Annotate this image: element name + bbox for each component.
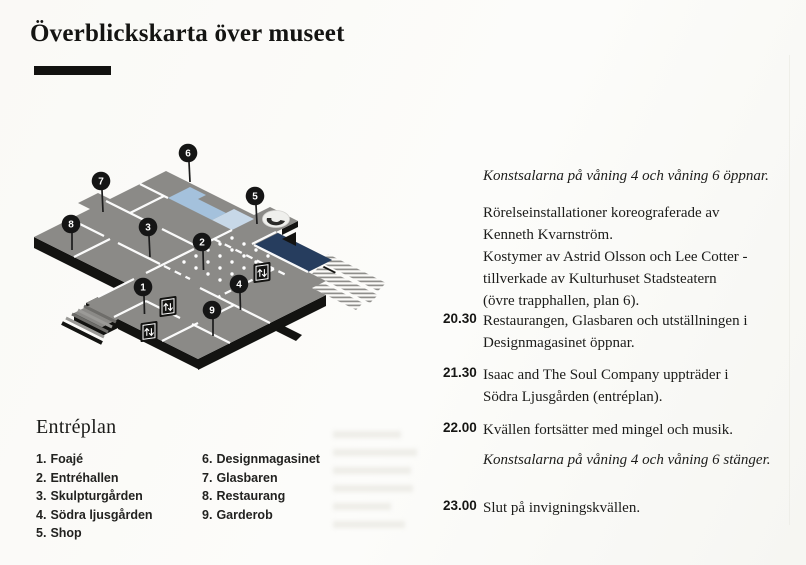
elevator-icon xyxy=(160,296,177,317)
legend-item-2: 2.Entréhallen xyxy=(36,469,153,488)
event-time: 21.30 xyxy=(443,365,477,380)
event-time: 22.00 xyxy=(443,420,477,435)
schedule-event-2130: 21.30 Isaac and The Soul Company uppträd… xyxy=(443,364,793,408)
schedule-event-2030: 20.30 Restaurangen, Glasbaren och utstäl… xyxy=(443,310,793,354)
opening-note: Konstsalarna på våning 4 och våning 6 öp… xyxy=(483,168,806,185)
floor-plan-heading: Entréplan xyxy=(36,416,116,439)
legend-item-8: 8.Restaurang xyxy=(202,487,320,506)
legend-column-right: 6.Designmagasinet 7.Glasbaren 8.Restaura… xyxy=(202,450,320,524)
legend-item-7: 7.Glasbaren xyxy=(202,469,320,488)
performance-description: Rörelseinstallationer koreograferade av … xyxy=(483,202,806,312)
elevator-icon xyxy=(141,321,158,342)
closing-note: Konstsalarna på våning 4 och våning 6 st… xyxy=(483,452,806,469)
svg-text:1: 1 xyxy=(140,283,146,294)
museum-floor-map: 1 2 3 4 5 6 7 8 9 xyxy=(30,120,400,410)
schedule-event-2200: 22.00 Kvällen fortsätter med mingel och … xyxy=(443,419,793,441)
svg-text:6: 6 xyxy=(185,149,191,160)
scanned-program-page: { "page": { "title": "Överblickskarta öv… xyxy=(0,0,806,565)
schedule-event-2300: 23.00 Slut på invigningskvällen. xyxy=(443,497,793,519)
legend-item-5: 5.Shop xyxy=(36,524,153,543)
svg-text:4: 4 xyxy=(236,280,242,291)
svg-text:5: 5 xyxy=(252,192,258,203)
legend-item-9: 9.Garderob xyxy=(202,506,320,525)
svg-text:7: 7 xyxy=(98,177,104,188)
page-title: Överblickskarta över museet xyxy=(30,20,345,48)
event-time: 20.30 xyxy=(443,311,477,326)
legend-column-left: 1.Foajé 2.Entréhallen 3.Skulpturgården 4… xyxy=(36,450,153,543)
svg-text:3: 3 xyxy=(145,223,151,234)
svg-text:9: 9 xyxy=(209,306,215,317)
svg-text:8: 8 xyxy=(68,220,74,231)
scan-page-edge xyxy=(789,55,790,525)
map-pin-6: 6 xyxy=(179,144,198,182)
svg-text:2: 2 xyxy=(199,238,205,249)
legend-item-4: 4.Södra ljusgården xyxy=(36,506,153,525)
title-underline-bar xyxy=(34,66,111,75)
event-time: 23.00 xyxy=(443,498,477,513)
spiral-staircase-icon xyxy=(263,211,290,228)
legend-item-1: 1.Foajé xyxy=(36,450,153,469)
legend-item-3: 3.Skulpturgården xyxy=(36,487,153,506)
elevator-icon xyxy=(254,262,271,283)
legend-item-6: 6.Designmagasinet xyxy=(202,450,320,469)
